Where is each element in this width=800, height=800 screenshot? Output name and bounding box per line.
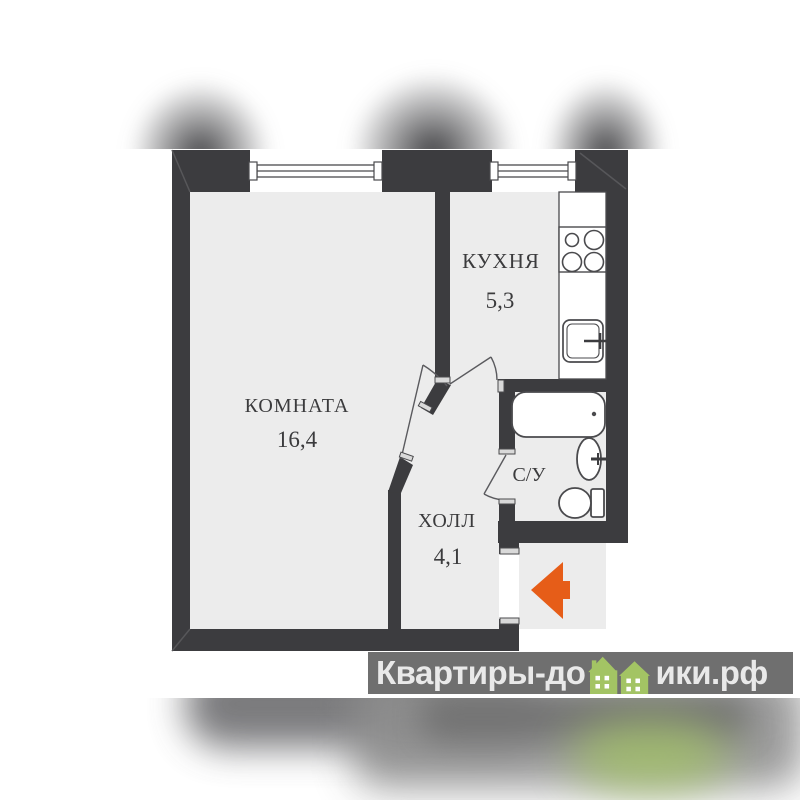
watermark-text-right: ики.рф — [655, 652, 767, 694]
hall-name-label: ХОЛЛ — [418, 510, 476, 532]
window-icon — [249, 150, 382, 192]
blur-blob — [318, 42, 548, 149]
bathroom-name-label: С/У — [512, 464, 546, 486]
kitchen-name-label: КУХНЯ — [462, 249, 540, 273]
watermark-bar: Квартиры-до ики.рф — [368, 652, 793, 694]
floor-plan: КОМНАТА 16,4 КУХНЯ 5,3 ХОЛЛ 4,1 С/У — [160, 140, 640, 660]
hall-area-label: 4,1 — [434, 544, 463, 569]
kitchen-sink-icon — [563, 320, 607, 362]
watermark-text-left: Квартиры-до — [376, 652, 585, 694]
blur-blob — [103, 52, 298, 149]
background-blur-top — [0, 0, 800, 149]
entrance-opening — [499, 554, 519, 619]
room-name-label: КОМНАТА — [245, 395, 350, 417]
house-icon — [586, 654, 654, 694]
blur-blob — [570, 720, 730, 792]
toilet-icon — [559, 488, 604, 518]
background-blur-bottom — [0, 698, 800, 800]
blur-blob — [523, 50, 688, 149]
screenshot-root: { "plan": { "rooms": [ { "name": "КОМНАТ… — [0, 0, 800, 800]
window-icon — [490, 150, 576, 192]
room-area-label: 16,4 — [277, 427, 318, 452]
kitchen-area-label: 5,3 — [486, 288, 515, 313]
stove-icon — [559, 227, 606, 272]
bathtub-icon — [512, 392, 605, 437]
